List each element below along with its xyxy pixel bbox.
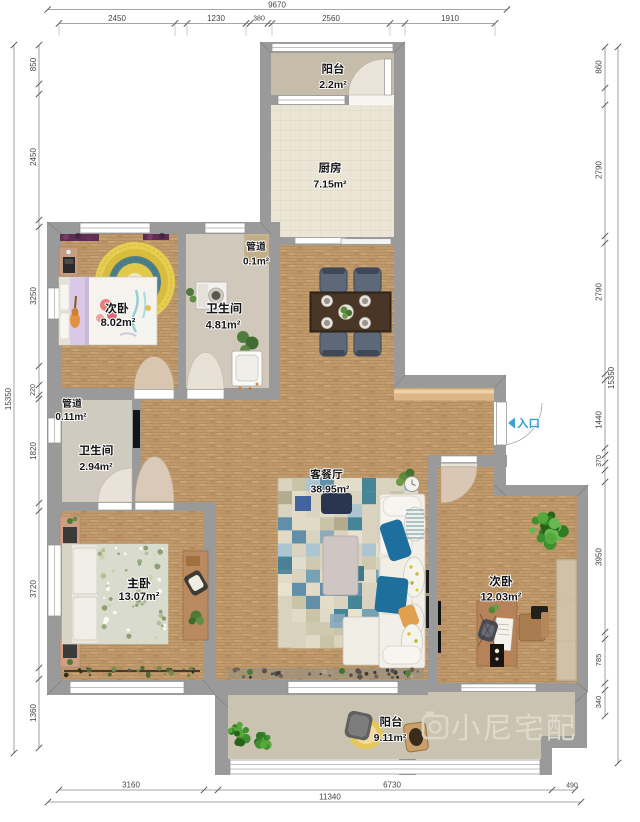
svg-text:3160: 3160 xyxy=(122,781,140,790)
svg-text:1910: 1910 xyxy=(441,14,459,23)
svg-text:1820: 1820 xyxy=(29,442,38,460)
svg-text:4.81m²: 4.81m² xyxy=(206,320,241,332)
svg-text:0.1m²: 0.1m² xyxy=(243,256,270,267)
svg-text:370: 370 xyxy=(596,455,603,467)
svg-text:3950: 3950 xyxy=(595,548,604,566)
svg-text:13.07m²: 13.07m² xyxy=(119,591,160,603)
svg-text:2.94m²: 2.94m² xyxy=(79,461,113,473)
svg-text:340: 340 xyxy=(594,696,603,709)
svg-text:785: 785 xyxy=(594,654,603,667)
svg-text:2560: 2560 xyxy=(322,14,340,23)
svg-text:380: 380 xyxy=(253,16,265,23)
svg-text:11340: 11340 xyxy=(319,793,341,802)
svg-text:8.02m²: 8.02m² xyxy=(101,317,136,329)
svg-text:1360: 1360 xyxy=(29,704,38,722)
svg-text:1230: 1230 xyxy=(207,14,225,23)
svg-text:7.15m²: 7.15m² xyxy=(313,179,347,191)
svg-text:2790: 2790 xyxy=(595,161,604,179)
svg-text:2450: 2450 xyxy=(29,148,38,166)
svg-text:6730: 6730 xyxy=(383,781,401,790)
svg-text:220: 220 xyxy=(30,384,37,396)
svg-text:3250: 3250 xyxy=(29,287,38,305)
svg-text:38.95m²: 38.95m² xyxy=(310,484,350,496)
svg-text:9670: 9670 xyxy=(268,1,286,10)
svg-text:2450: 2450 xyxy=(108,14,126,23)
svg-text:2.2m²: 2.2m² xyxy=(319,79,347,91)
svg-text:850: 850 xyxy=(29,57,38,71)
svg-text:1440: 1440 xyxy=(595,411,604,429)
svg-text:15350: 15350 xyxy=(4,387,13,410)
svg-text:3720: 3720 xyxy=(29,580,38,598)
svg-text:860: 860 xyxy=(595,60,604,74)
svg-text:12.03m²: 12.03m² xyxy=(481,592,522,604)
svg-text:0.11m²: 0.11m² xyxy=(55,412,87,423)
svg-text:9.11m²: 9.11m² xyxy=(374,732,407,744)
svg-text:15350: 15350 xyxy=(607,366,616,389)
svg-text:2790: 2790 xyxy=(595,283,604,301)
svg-text:490: 490 xyxy=(566,783,578,790)
